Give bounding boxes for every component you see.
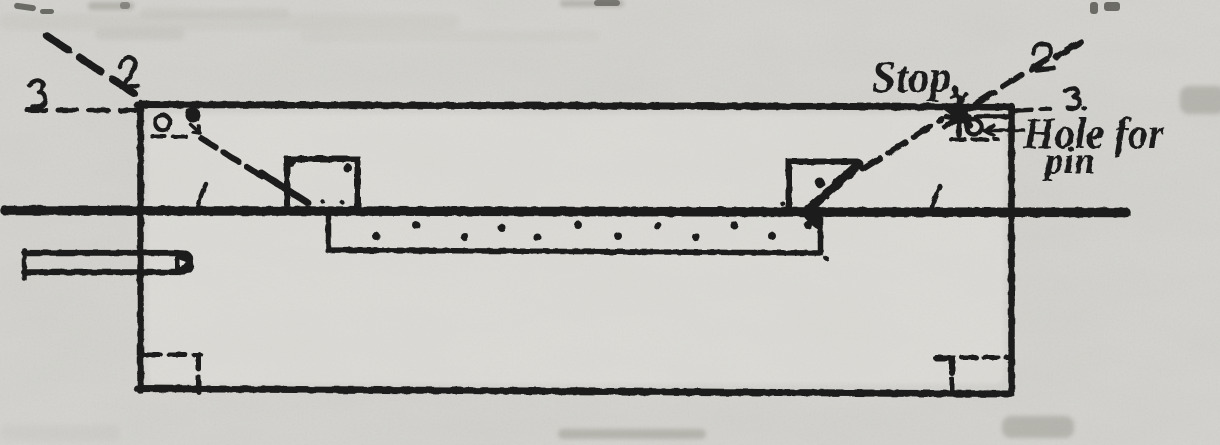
svg-text:pin: pin xyxy=(1042,140,1095,182)
svg-text:Stop,: Stop, xyxy=(872,51,962,102)
